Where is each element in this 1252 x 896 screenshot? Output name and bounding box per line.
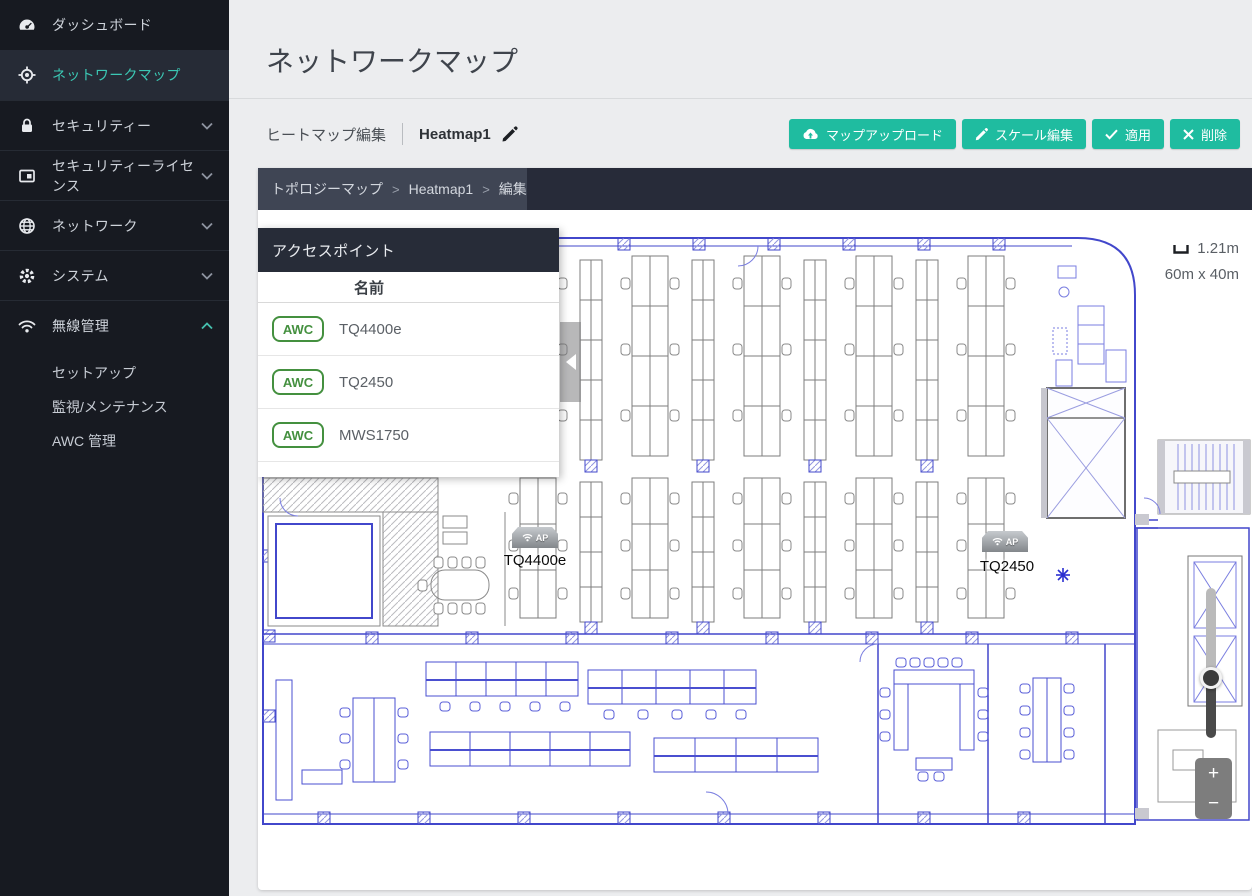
sidebar-item-label: 無線管理 <box>52 316 109 336</box>
zoom-controls: + − <box>1195 758 1232 819</box>
map-upload-label: マップアップロード <box>826 125 943 144</box>
zoom-slider-track[interactable] <box>1206 588 1216 738</box>
network-map-icon <box>17 65 37 85</box>
zoom-slider-handle[interactable] <box>1200 667 1222 689</box>
scale-indicator: 1.21m 60m x 40m <box>1165 240 1239 283</box>
map-card: トポロジーマップ > Heatmap1 > 編集 <box>258 168 1252 890</box>
sidebar-item-label: システム <box>52 266 109 286</box>
map-upload-button[interactable]: マップアップロード <box>789 119 956 149</box>
toolbar-left: ヒートマップ編集 Heatmap1 <box>266 100 518 168</box>
chevron-down-icon <box>201 272 213 280</box>
chevron-up-icon <box>201 322 213 330</box>
toolbar-divider <box>402 123 403 145</box>
chevron-left-icon <box>566 354 576 370</box>
access-point-panel: アクセスポイント 名前 AWC TQ4400e AWC TQ2450 AWC <box>258 228 559 477</box>
sidebar-item-wireless[interactable]: 無線管理 <box>0 300 229 350</box>
toolbar-buttons: マップアップロード スケール編集 適用 <box>789 119 1240 149</box>
awc-badge: AWC <box>272 422 324 448</box>
pencil-icon <box>975 128 988 141</box>
toolbar: ヒートマップ編集 Heatmap1 マップアップロード <box>229 100 1252 168</box>
scale-edit-button[interactable]: スケール編集 <box>962 119 1086 149</box>
breadcrumb: トポロジーマップ > Heatmap1 > 編集 <box>258 168 527 210</box>
ap-row-tq4400e[interactable]: AWC TQ4400e <box>258 303 559 356</box>
zoom-in-button[interactable]: + <box>1195 758 1232 789</box>
breadcrumb-edit[interactable]: 編集 <box>499 179 527 199</box>
sidebar-item-label: セキュリティーライセンス <box>52 156 201 196</box>
ap-table-header: 名前 <box>258 272 559 303</box>
wifi-icon <box>992 537 1003 546</box>
x-icon <box>1183 129 1194 140</box>
sidebar-item-label: セキュリティー <box>52 116 151 136</box>
ap-row-tq2450[interactable]: AWC TQ2450 <box>258 356 559 409</box>
ap-marker-label: TQ2450 <box>980 558 1034 575</box>
sidebar-submenu: セットアップ 監視/メンテナンス AWC 管理 <box>0 350 229 468</box>
ap-marker-text: AP <box>1006 537 1019 547</box>
sidebar-item-label: ネットワークマップ <box>52 65 181 85</box>
map-canvas[interactable]: AP TQ4400e AP TQ2450 1.21m 60m <box>258 210 1252 890</box>
app-root: ダッシュボード ネットワークマップ セキュリティー セキュリティーライセンス <box>0 0 1252 896</box>
scale-ruler-icon <box>1173 244 1189 254</box>
sidebar-item-label: ネットワーク <box>52 216 138 236</box>
cloud-upload-icon <box>802 128 819 141</box>
delete-label: 削除 <box>1201 125 1227 144</box>
ap-name: TQ2450 <box>339 374 393 391</box>
sidebar-subitem-setup[interactable]: セットアップ <box>0 356 229 390</box>
sidebar-item-security-license[interactable]: セキュリティーライセンス <box>0 150 229 200</box>
sidebar-item-system[interactable]: システム <box>0 250 229 300</box>
sidebar-subitem-monitoring[interactable]: 監視/メンテナンス <box>0 390 229 424</box>
globe-icon <box>17 216 37 236</box>
awc-badge: AWC <box>272 316 324 342</box>
zoom-out-button[interactable]: − <box>1195 789 1232 820</box>
wifi-icon <box>522 533 533 542</box>
apply-label: 適用 <box>1125 125 1151 144</box>
breadcrumb-separator: > <box>392 182 400 197</box>
gauge-icon <box>17 15 37 35</box>
delete-button[interactable]: 削除 <box>1170 119 1240 149</box>
sidebar-item-dashboard[interactable]: ダッシュボード <box>0 0 229 50</box>
ap-row-mws1750[interactable]: AWC MWS1750 <box>258 409 559 462</box>
main-area: ネットワークマップ ヒートマップ編集 Heatmap1 マップアップロード <box>229 0 1252 896</box>
awc-badge: AWC <box>272 369 324 395</box>
chevron-down-icon <box>201 222 213 230</box>
ap-marker-label: TQ4400e <box>504 552 567 569</box>
breadcrumb-bar: トポロジーマップ > Heatmap1 > 編集 <box>258 168 1252 210</box>
sidebar: ダッシュボード ネットワークマップ セキュリティー セキュリティーライセンス <box>0 0 229 896</box>
breadcrumb-heatmap[interactable]: Heatmap1 <box>409 181 474 197</box>
ap-marker-text: AP <box>536 533 549 543</box>
wifi-icon <box>17 316 37 336</box>
rename-pencil-icon[interactable] <box>501 126 518 143</box>
sidebar-subitem-awc[interactable]: AWC 管理 <box>0 424 229 458</box>
access-point-panel-title: アクセスポイント <box>258 228 559 272</box>
gear-icon <box>17 266 37 286</box>
sidebar-item-network-map[interactable]: ネットワークマップ <box>0 50 229 100</box>
map-dimensions: 60m x 40m <box>1165 266 1239 283</box>
chevron-down-icon <box>201 172 213 180</box>
heatmap-edit-label: ヒートマップ編集 <box>266 124 386 145</box>
heatmap-name: Heatmap1 <box>419 126 491 143</box>
sidebar-item-label: ダッシュボード <box>52 15 152 35</box>
ap-name: TQ4400e <box>339 321 402 338</box>
ap-name: MWS1750 <box>339 427 409 444</box>
page-title: ネットワークマップ <box>266 40 518 80</box>
apply-button[interactable]: 適用 <box>1092 119 1164 149</box>
ap-marker-tq2450[interactable]: AP <box>982 531 1028 552</box>
scale-length: 1.21m <box>1197 240 1239 257</box>
panel-collapse-handle[interactable] <box>560 322 581 402</box>
lock-icon <box>17 116 37 136</box>
ap-marker-tq4400e[interactable]: AP <box>512 527 558 548</box>
sidebar-item-security[interactable]: セキュリティー <box>0 100 229 150</box>
page-header: ネットワークマップ <box>229 0 1252 99</box>
check-icon <box>1105 129 1118 140</box>
name-column-header: 名前 <box>354 277 384 298</box>
sidebar-item-network[interactable]: ネットワーク <box>0 200 229 250</box>
breadcrumb-topology[interactable]: トポロジーマップ <box>271 179 383 199</box>
breadcrumb-separator: > <box>482 182 490 197</box>
license-icon <box>17 166 37 186</box>
chevron-down-icon <box>201 122 213 130</box>
scale-edit-label: スケール編集 <box>995 125 1073 144</box>
